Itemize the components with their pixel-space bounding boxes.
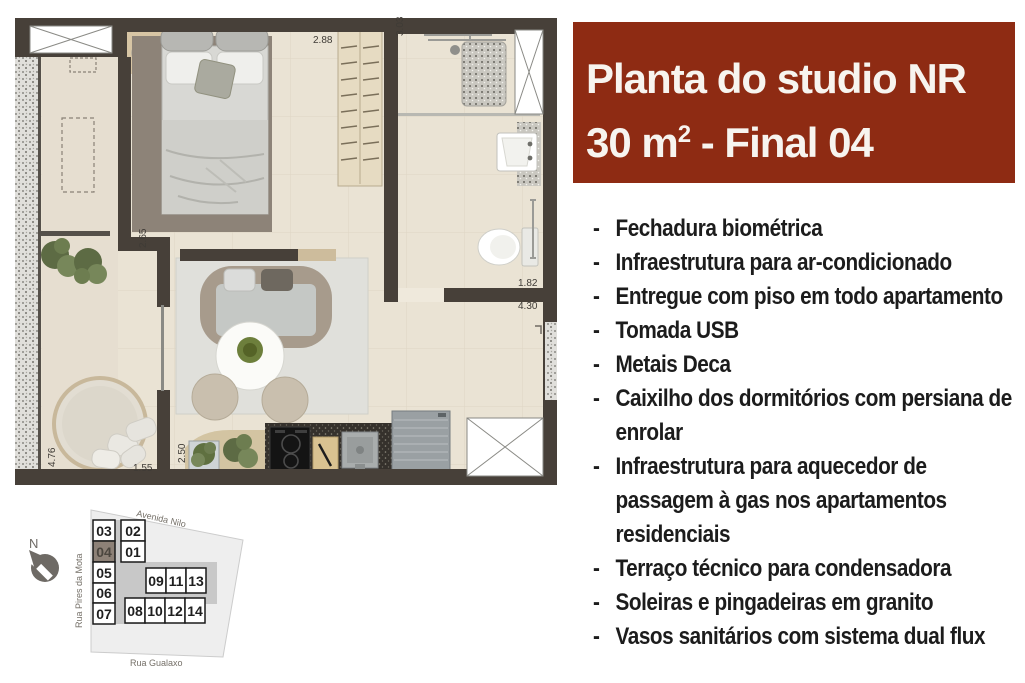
- unit-label-04: 04: [96, 544, 112, 560]
- area-superscript: 2: [678, 121, 690, 148]
- bathroom-sink: [497, 133, 537, 171]
- feature-item: -Vasos sanitários com sistema dual flux: [593, 620, 1025, 654]
- terrace-granite-edge: [15, 57, 39, 469]
- feature-text: Caixilho dos dormitórios com persiana de…: [615, 385, 1011, 446]
- bullet-dash: -: [593, 586, 599, 620]
- unit-label-01: 01: [125, 544, 141, 560]
- feature-text: Infraestrutura para ar-condicionado: [615, 249, 951, 276]
- accent-pillow: [194, 59, 236, 100]
- planter: [40, 231, 110, 236]
- pouf: [262, 377, 308, 423]
- street-bottom: Rua Gualaxo: [130, 658, 183, 668]
- page-title-line2: 30 m2 - Final 04: [586, 111, 1015, 175]
- unit-label-10: 10: [147, 603, 163, 619]
- feature-item: -Entregue com piso em todo apartamento: [593, 280, 1025, 314]
- feature-item: -Soleiras e pingadeiras em granito: [593, 586, 1025, 620]
- page-title-line1: Planta do studio NR: [586, 47, 1015, 111]
- bullet-dash: -: [593, 280, 599, 314]
- shaft-bottom-right: [467, 418, 543, 476]
- bullet-dash: -: [593, 620, 599, 654]
- wardrobe: [338, 30, 382, 186]
- bullet-dash: -: [593, 382, 599, 416]
- feature-item: -Fechadura biométrica: [593, 212, 1025, 246]
- unit-label-14: 14: [187, 603, 203, 619]
- unit-label-08: 08: [127, 603, 143, 619]
- feature-text: Fechadura biométrica: [615, 215, 822, 242]
- bullet-dash: -: [593, 450, 599, 484]
- bullet-dash: -: [593, 212, 599, 246]
- dim-terrace-length: 4.76: [47, 447, 58, 467]
- feature-text: Metais Deca: [615, 351, 730, 378]
- pouf: [192, 374, 238, 420]
- feature-item: -Metais Deca: [593, 348, 1025, 382]
- shower-drain: [450, 45, 460, 55]
- living-room: [176, 249, 368, 423]
- dim-living-width: 4.30: [518, 301, 538, 312]
- refrigerator: [392, 411, 450, 472]
- unit-label-03: 03: [96, 523, 112, 539]
- title-block: Planta do studio NR 30 m2 - Final 04: [573, 22, 1015, 183]
- dim-bath-length: 3.03: [395, 16, 406, 36]
- feature-text: Soleiras e pingadeiras em granito: [615, 589, 933, 616]
- terrace-sliding-door: [161, 305, 164, 391]
- unit-label-07: 07: [96, 606, 112, 622]
- cutting-board: [313, 437, 338, 473]
- north-label: N: [29, 536, 38, 551]
- dim-terrace-width: 1.55: [133, 463, 153, 474]
- bullet-dash: -: [593, 314, 599, 348]
- feature-item: -Tomada USB: [593, 314, 1025, 348]
- bullet-dash: -: [593, 552, 599, 586]
- dim-bath-width: 1.82: [518, 278, 538, 289]
- shaft-top-left: [30, 26, 112, 53]
- potted-plant: [189, 441, 219, 471]
- feature-text: Vasos sanitários com sistema dual flux: [615, 623, 985, 650]
- kitchen-sink: [342, 432, 378, 471]
- street-left: Rua Pires da Mota: [74, 553, 84, 628]
- right-wall-granite: [545, 322, 557, 400]
- floor-plan: 2.88 3.03 2.65 1.82 4.30 4.76 1.55 2.50: [0, 0, 557, 500]
- unit-label-11: 11: [169, 573, 184, 589]
- area-value: 30 m: [586, 119, 678, 166]
- dim-kitchen-depth: 2.50: [177, 443, 188, 463]
- title-final-number: - Final 04: [690, 119, 873, 166]
- shaft-top-right: [515, 30, 543, 114]
- bed: [161, 27, 268, 214]
- feature-item: -Caixilho dos dormitórios com persiana d…: [593, 382, 1025, 450]
- unit-label-05: 05: [96, 565, 112, 581]
- flyer-page: 2.88 3.03 2.65 1.82 4.30 4.76 1.55 2.50 …: [0, 0, 1025, 683]
- feature-item: -Terraço técnico para condensadora: [593, 552, 1025, 586]
- north-arrow: N: [22, 536, 59, 582]
- feature-text: Entregue com piso em todo apartamento: [615, 283, 1002, 310]
- site-key-plan: N Avenida Nilo Rua Pires da Mota Rua Gua…: [18, 500, 298, 680]
- unit-label-12: 12: [167, 603, 183, 619]
- feature-item: -Infraestrutura para ar-condicionado: [593, 246, 1025, 280]
- bullet-dash: -: [593, 246, 599, 280]
- shower-mat: [462, 42, 506, 106]
- unit-label-06: 06: [96, 585, 112, 601]
- toilet: [478, 228, 538, 266]
- bathroom-door-opening: [398, 288, 444, 302]
- unit-label-13: 13: [188, 573, 204, 589]
- feature-list: -Fechadura biométrica -Infraestrutura pa…: [593, 212, 1025, 654]
- cooktop: [270, 427, 310, 470]
- dim-bedroom-width: 2.88: [313, 35, 333, 46]
- feature-text: Infraestrutura para aquecedor de passage…: [615, 453, 946, 548]
- dim-bedroom-length: 2.65: [138, 228, 149, 248]
- unit-label-02: 02: [125, 523, 141, 539]
- unit-label-09: 09: [148, 573, 164, 589]
- feature-text: Tomada USB: [615, 317, 738, 344]
- feature-item: -Infraestrutura para aquecedor de passag…: [593, 450, 1025, 552]
- bullet-dash: -: [593, 348, 599, 382]
- tv-console: [180, 249, 298, 261]
- title-text-line1: Planta do studio NR: [586, 55, 966, 102]
- feature-text: Terraço técnico para condensadora: [615, 555, 951, 582]
